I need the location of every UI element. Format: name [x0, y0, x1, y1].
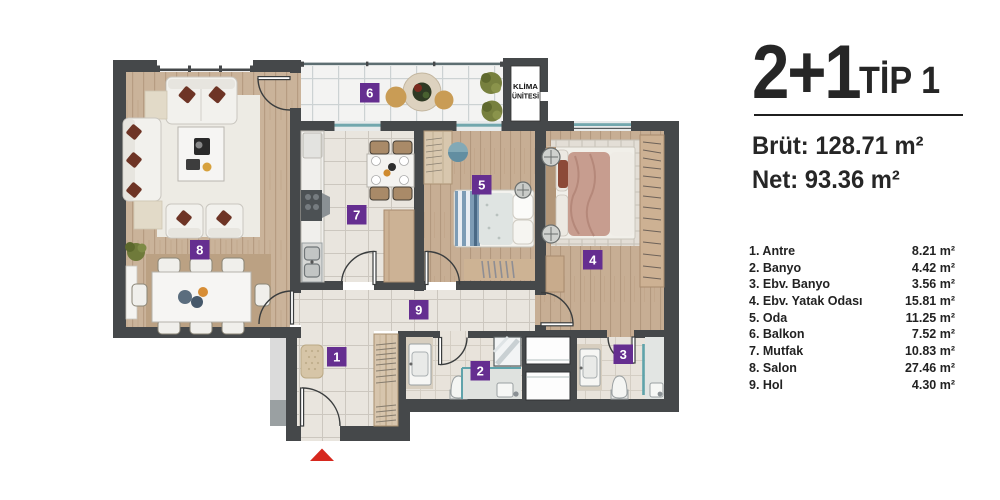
svg-text:KLİMA: KLİMA [513, 82, 539, 91]
svg-text:5: 5 [478, 178, 485, 193]
svg-text:7: 7 [353, 208, 360, 223]
svg-text:2: 2 [477, 364, 484, 379]
svg-text:6: 6 [366, 86, 373, 101]
svg-text:1: 1 [333, 350, 340, 365]
svg-text:8: 8 [196, 243, 203, 258]
svg-text:4: 4 [589, 253, 597, 268]
svg-text:ÜNİTESİ: ÜNİTESİ [512, 92, 539, 101]
svg-text:3: 3 [620, 347, 627, 362]
svg-text:9: 9 [415, 303, 422, 318]
